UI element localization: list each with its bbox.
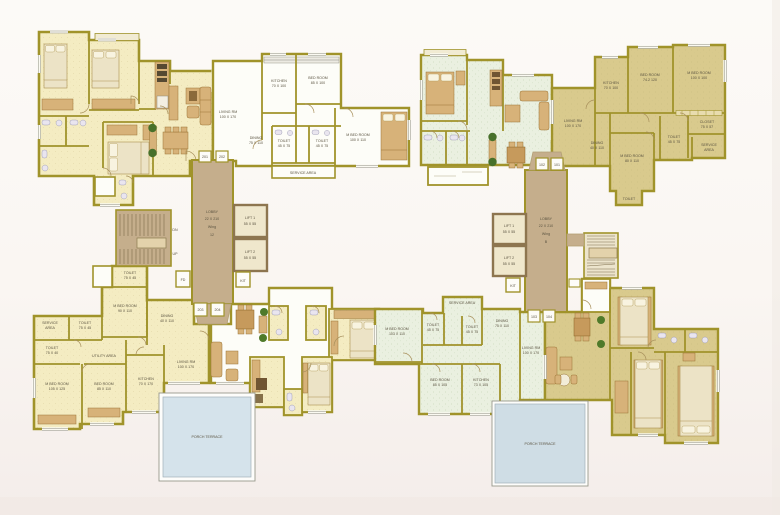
svg-text:KITCHEN: KITCHEN: [271, 79, 287, 83]
svg-text:73 X 105: 73 X 105: [474, 383, 488, 387]
svg-text:104: 104: [546, 315, 552, 319]
svg-text:Wing: Wing: [542, 232, 550, 236]
svg-text:DN: DN: [172, 228, 178, 232]
svg-text:KITCHEN: KITCHEN: [603, 81, 619, 85]
svg-text:75 X 110: 75 X 110: [249, 141, 263, 145]
svg-text:40 X 110: 40 X 110: [160, 319, 174, 323]
svg-text:SERVICE AREA: SERVICE AREA: [290, 171, 317, 175]
svg-text:85 X 110: 85 X 110: [97, 387, 111, 391]
svg-text:100 X 170: 100 X 170: [565, 124, 581, 128]
svg-text:BED ROOM: BED ROOM: [94, 382, 114, 386]
svg-text:BED ROOM: BED ROOM: [308, 76, 328, 80]
svg-text:102: 102: [539, 163, 545, 167]
svg-text:204: 204: [215, 308, 221, 312]
svg-text:100 X 170: 100 X 170: [220, 115, 236, 119]
svg-text:FD: FD: [181, 278, 186, 282]
svg-text:M BED ROOM: M BED ROOM: [113, 304, 137, 308]
svg-text:LIFT 1: LIFT 1: [504, 224, 514, 228]
svg-text:TOILET: TOILET: [668, 135, 681, 139]
svg-text:201: 201: [202, 155, 208, 159]
svg-text:M BED ROOM: M BED ROOM: [45, 382, 69, 386]
svg-text:SERVICE: SERVICE: [42, 321, 58, 325]
svg-text:45 X 75: 45 X 75: [427, 328, 439, 332]
svg-text:105 X 125: 105 X 125: [49, 387, 65, 391]
svg-text:TOILET: TOILET: [466, 325, 479, 329]
svg-text:100 X 100: 100 X 100: [691, 76, 707, 80]
svg-text:TOILET: TOILET: [79, 321, 92, 325]
svg-text:CLOSET: CLOSET: [700, 120, 715, 124]
svg-text:UTILITY AREA: UTILITY AREA: [92, 354, 117, 358]
svg-text:KIT: KIT: [240, 279, 246, 283]
svg-text:PORCH TERRACE: PORCH TERRACE: [524, 442, 556, 446]
svg-text:100 X 170: 100 X 170: [523, 351, 539, 355]
svg-text:70 X 100: 70 X 100: [604, 86, 618, 90]
svg-text:LIFT 1: LIFT 1: [245, 216, 255, 220]
svg-text:75 X 40: 75 X 40: [46, 351, 58, 355]
svg-text:12: 12: [210, 233, 214, 237]
svg-text:202: 202: [219, 155, 225, 159]
svg-text:DINING: DINING: [496, 319, 509, 323]
svg-text:75 X 45: 75 X 45: [124, 276, 136, 280]
svg-text:80 X 110: 80 X 110: [625, 159, 639, 163]
svg-text:LOBBY: LOBBY: [206, 210, 219, 214]
svg-text:DINING: DINING: [591, 141, 604, 145]
svg-text:45 X 75: 45 X 75: [668, 140, 680, 144]
svg-text:Wing: Wing: [208, 225, 216, 229]
svg-text:90 X 110: 90 X 110: [118, 309, 132, 313]
svg-text:45 X 75: 45 X 75: [316, 144, 328, 148]
svg-text:203: 203: [198, 308, 204, 312]
svg-text:101: 101: [554, 163, 560, 167]
svg-text:TOILET: TOILET: [278, 139, 291, 143]
svg-text:LIFT 2: LIFT 2: [504, 256, 514, 260]
svg-text:BED ROOM: BED ROOM: [640, 73, 660, 77]
svg-text:LIFT 2: LIFT 2: [245, 250, 255, 254]
svg-text:TOILET: TOILET: [124, 271, 137, 275]
svg-text:TOILET: TOILET: [427, 323, 440, 327]
svg-text:75 X 57: 75 X 57: [701, 125, 713, 129]
svg-text:TOILET: TOILET: [316, 139, 329, 143]
svg-text:55 X 55: 55 X 55: [503, 230, 515, 234]
svg-text:22 X 210: 22 X 210: [205, 217, 219, 221]
svg-text:AREA: AREA: [704, 148, 714, 152]
svg-text:55 X 55: 55 X 55: [244, 256, 256, 260]
svg-text:85 X 100: 85 X 100: [311, 81, 325, 85]
svg-text:LIVING RM: LIVING RM: [219, 110, 237, 114]
svg-text:TOILET: TOILET: [46, 346, 59, 350]
svg-text:M BED ROOM: M BED ROOM: [385, 327, 409, 331]
svg-text:100 X 170: 100 X 170: [178, 365, 194, 369]
svg-text:75 X 45: 75 X 45: [79, 326, 91, 330]
svg-text:M BED ROOM: M BED ROOM: [346, 133, 370, 137]
svg-text:103: 103: [531, 315, 537, 319]
svg-text:UP: UP: [173, 252, 179, 256]
svg-text:55 X 55: 55 X 55: [244, 222, 256, 226]
svg-text:SERVICE: SERVICE: [701, 143, 717, 147]
svg-text:DINING: DINING: [161, 314, 174, 318]
svg-text:SERVICE AREA: SERVICE AREA: [449, 301, 476, 305]
svg-text:M BED ROOM: M BED ROOM: [620, 154, 644, 158]
svg-text:M BED ROOM: M BED ROOM: [687, 71, 711, 75]
svg-text:KITCHEN: KITCHEN: [138, 377, 154, 381]
svg-text:70 X 170: 70 X 170: [139, 382, 153, 386]
svg-text:70 X 100: 70 X 100: [272, 84, 286, 88]
svg-text:55 X 55: 55 X 55: [503, 262, 515, 266]
svg-text:LOBBY: LOBBY: [540, 217, 553, 221]
svg-text:LIVING RM: LIVING RM: [564, 119, 582, 123]
svg-text:KITCHEN: KITCHEN: [473, 378, 489, 382]
svg-text:BED ROOM: BED ROOM: [430, 378, 450, 382]
svg-text:PORCH TERRACE: PORCH TERRACE: [191, 435, 223, 439]
svg-text:45 X 75: 45 X 75: [466, 330, 478, 334]
svg-text:75 X 110: 75 X 110: [495, 324, 509, 328]
svg-text:AREA: AREA: [45, 326, 55, 330]
svg-text:LIVING RM: LIVING RM: [177, 360, 195, 364]
svg-text:85 X 105: 85 X 105: [433, 383, 447, 387]
svg-text:45 X 75: 45 X 75: [278, 144, 290, 148]
svg-text:LIVING RM: LIVING RM: [522, 346, 540, 350]
svg-text:DINING: DINING: [250, 136, 263, 140]
svg-text:103 X 110: 103 X 110: [389, 332, 405, 336]
svg-text:40 X 110: 40 X 110: [590, 146, 604, 150]
svg-text:22 X 210: 22 X 210: [539, 224, 553, 228]
svg-text:100 X 110: 100 X 110: [350, 138, 366, 142]
svg-text:KIT: KIT: [510, 284, 516, 288]
svg-text:74.2 120: 74.2 120: [643, 78, 657, 82]
svg-text:TOILET: TOILET: [623, 197, 636, 201]
